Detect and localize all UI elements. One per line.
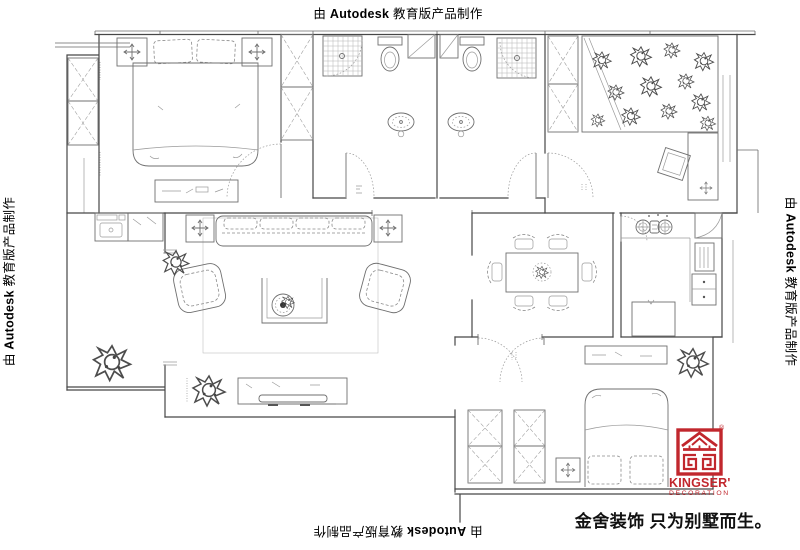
registered-mark: ® <box>719 425 724 432</box>
room-dining <box>488 235 597 311</box>
bed <box>585 389 668 487</box>
dish-rack <box>695 243 714 271</box>
bathroom-door <box>508 153 536 197</box>
table-centerpiece <box>533 263 551 281</box>
armchair <box>357 261 413 315</box>
watermark-left: 由 Autodesk 教育版产品制作 <box>0 182 18 382</box>
room-bathroom-1 <box>323 35 458 198</box>
watermark-bottom: 由 Autodesk 教育版产品制作 <box>298 523 498 542</box>
room-bedroom-topleft <box>68 35 313 203</box>
toilet <box>460 37 484 71</box>
watermark-suffix: 教育版产品制作 <box>3 197 17 290</box>
watermark-brand: Autodesk <box>330 7 389 21</box>
coffee-table <box>262 278 327 323</box>
room-balcony-left <box>94 213 163 380</box>
room-bathroom-2 <box>448 37 536 197</box>
duct-shaft <box>408 35 458 59</box>
plant <box>678 349 708 378</box>
watermark-prefix: 由 <box>313 7 330 21</box>
plant <box>193 376 225 406</box>
watermark-top: 由 Autodesk 教育版产品制作 <box>298 3 498 22</box>
watermark-brand: Autodesk <box>3 290 17 349</box>
watermark-brand: Autodesk <box>784 213 798 272</box>
dining-table <box>506 253 578 292</box>
brand-slogan: 金舍装饰 只为别墅而生。 <box>575 507 772 532</box>
kingser-house-icon <box>676 428 723 476</box>
watermark-suffix: 教育版产品制作 <box>784 273 798 366</box>
room-kitchen <box>621 213 722 336</box>
wardrobe <box>281 35 313 141</box>
watermark-suffix: 教育版产品制作 <box>389 7 482 21</box>
bed <box>133 39 258 166</box>
room-living <box>163 215 413 406</box>
stove <box>636 214 672 234</box>
tv-cabinet <box>238 378 347 406</box>
dining-chair <box>547 235 569 250</box>
dining-chair <box>488 261 503 283</box>
sink-counter <box>95 213 163 241</box>
watermark-right: 由 Autodesk 教育版产品制作 <box>783 182 800 382</box>
garden-door <box>548 153 593 198</box>
wardrobe <box>548 36 578 132</box>
rug <box>203 218 378 353</box>
brand-name: KINGSER' <box>669 477 729 490</box>
floorplan-page: 由 Autodesk 教育版产品制作 由 Autodesk 教育版产品制作 由 … <box>0 0 800 550</box>
plant <box>163 251 189 275</box>
dining-chair <box>513 296 535 311</box>
tv-cabinet <box>585 346 667 364</box>
side-table <box>186 215 402 242</box>
lounge-chair <box>658 133 718 200</box>
dining-chair <box>547 296 569 311</box>
walls <box>55 31 758 522</box>
kingser-logo: ® KINGSER' DECORATION <box>669 428 729 498</box>
toilet <box>378 37 402 71</box>
dining-chair <box>582 261 597 283</box>
entry-doors <box>478 338 544 382</box>
watermark-prefix: 由 <box>784 197 798 214</box>
watermark-prefix: 由 <box>3 350 17 367</box>
shower <box>497 38 536 78</box>
watermark-brand: Autodesk <box>407 524 466 538</box>
shower <box>323 36 362 76</box>
washbasin <box>388 113 414 137</box>
dining-chair <box>513 235 535 250</box>
room-garden <box>548 36 718 200</box>
bathroom-door <box>346 153 374 197</box>
brand-subtitle: DECORATION <box>669 490 729 498</box>
refrigerator <box>632 300 675 336</box>
wardrobe <box>68 58 98 145</box>
wardrobe <box>468 410 545 483</box>
bedroom-door <box>227 144 281 198</box>
washbasin <box>448 113 474 137</box>
sofa <box>216 216 372 246</box>
watermark-suffix: 教育版产品制作 <box>313 524 406 538</box>
nightstand <box>117 38 272 66</box>
corner-cabinet <box>695 213 722 238</box>
planting-bed <box>582 36 718 132</box>
plant <box>94 346 131 381</box>
watermark-prefix: 由 <box>466 524 483 538</box>
nightstand <box>556 458 580 482</box>
dresser <box>155 180 238 202</box>
cabinet <box>692 274 716 305</box>
